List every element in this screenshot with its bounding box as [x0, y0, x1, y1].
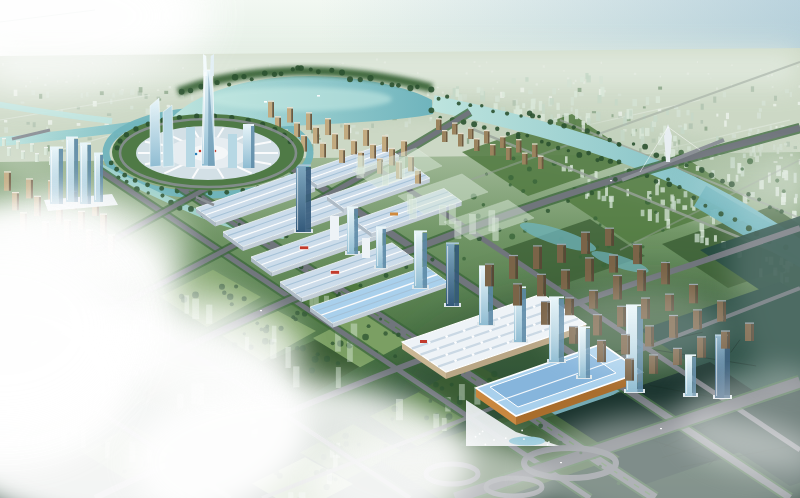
- residential-slab: [541, 302, 547, 325]
- ghost-building: [552, 88, 556, 95]
- tree-dot: [613, 177, 618, 182]
- residential-slab: [268, 102, 272, 118]
- residential-slab: [332, 134, 336, 149]
- distant-building: [340, 124, 342, 127]
- residential-slab-side: [343, 150, 345, 163]
- residential-roof: [401, 140, 407, 141]
- tree-dot: [215, 80, 220, 85]
- residential-roof: [565, 297, 574, 298]
- residential-roof: [30, 143, 34, 144]
- ghost-building: [556, 103, 559, 110]
- ghost-tower: [399, 157, 404, 177]
- residential-slab-side: [536, 145, 538, 157]
- distant-building: [405, 121, 409, 127]
- cbd-tower-roof: [94, 153, 103, 155]
- distant-building: [107, 113, 111, 116]
- tree-dot: [468, 103, 472, 107]
- residential-roof: [538, 156, 544, 157]
- tree-dot: [608, 159, 613, 164]
- distant-building: [757, 112, 761, 118]
- tree-dot: [691, 195, 696, 200]
- ghost-building: [477, 87, 481, 93]
- ghost-building: [502, 92, 505, 97]
- tree-dot: [548, 119, 554, 125]
- ghost-building: [519, 109, 522, 114]
- tree-dot: [339, 69, 345, 75]
- tree-dot: [291, 315, 295, 319]
- tower-side: [306, 167, 311, 232]
- far-speck: [417, 72, 419, 74]
- tree-dot: [599, 223, 602, 226]
- residential-roof: [533, 245, 542, 246]
- residential-slab: [537, 275, 543, 297]
- tree-dot: [527, 167, 532, 172]
- distant-building: [726, 113, 729, 119]
- residential-slab: [532, 144, 536, 157]
- ghost-building: [599, 76, 603, 84]
- distant-building: [520, 88, 524, 93]
- tree-dot: [393, 354, 397, 358]
- distant-building: [701, 120, 704, 124]
- residential-roof: [458, 133, 464, 134]
- residential-slab-side: [519, 285, 522, 306]
- distant-building: [4, 127, 8, 133]
- residential-slab: [4, 172, 9, 190]
- tower-roof: [376, 226, 386, 228]
- tree-dot: [509, 183, 512, 186]
- residential-slab-side: [291, 109, 293, 123]
- far-speck: [601, 62, 603, 64]
- ghost-building: [691, 113, 694, 121]
- tree-dot: [407, 85, 413, 91]
- residential-slab: [287, 108, 291, 122]
- tree-dot: [159, 186, 164, 191]
- tree-dot: [579, 255, 582, 258]
- ghost-tower: [382, 163, 388, 186]
- tree-dot: [556, 146, 560, 150]
- tree-dot: [316, 69, 321, 74]
- tree-dot: [262, 70, 268, 76]
- tree-dot: [654, 179, 659, 184]
- residential-slab-side: [456, 124, 458, 135]
- tower-sheen: [297, 168, 298, 230]
- plaza-color-dot: [195, 153, 198, 156]
- ghost-building: [652, 121, 656, 127]
- dome-skylight: [472, 335, 475, 338]
- residential-slab-side: [543, 275, 546, 296]
- plaza-dot: [479, 433, 481, 435]
- ghost-building: [632, 99, 637, 106]
- distant-building: [62, 140, 64, 142]
- residential-slab-side: [526, 154, 528, 164]
- tree-dot: [232, 74, 238, 80]
- dome-skylight: [533, 305, 536, 308]
- distant-building: [578, 88, 582, 92]
- tree-dot: [530, 113, 535, 118]
- residential-slab-side: [510, 148, 512, 160]
- tree-dot: [457, 101, 461, 105]
- tree-dot: [415, 85, 420, 90]
- residential-roof: [2, 138, 6, 139]
- far-speck: [710, 78, 711, 79]
- red-sign: [420, 340, 427, 343]
- distant-building: [775, 126, 777, 128]
- dome-skylight: [454, 341, 457, 344]
- ghost-building: [480, 88, 483, 96]
- tree-dot: [508, 175, 513, 180]
- tree-dot: [316, 352, 320, 356]
- tree-dot: [495, 127, 499, 131]
- tree-dot: [462, 257, 466, 261]
- tree-dot: [179, 89, 185, 95]
- residential-roof: [358, 151, 364, 152]
- tree-dot: [654, 211, 657, 214]
- tree-dot: [109, 161, 114, 166]
- dome-skylight: [498, 335, 501, 338]
- tree-dot: [379, 318, 382, 321]
- residential-slab: [633, 245, 639, 264]
- residential-slab-side: [639, 245, 642, 264]
- tree-dot: [509, 234, 515, 240]
- far-speck: [442, 92, 444, 94]
- ghost-building: [670, 195, 673, 202]
- tree-dot: [331, 341, 335, 345]
- ghost-building: [602, 196, 607, 201]
- ghost-building: [655, 185, 659, 195]
- tower-roof: [347, 206, 358, 208]
- far-speck: [575, 80, 577, 82]
- twin-tower: [163, 105, 174, 167]
- residential-roof: [339, 149, 345, 150]
- far-speck: [437, 87, 439, 88]
- cbd-tower-roof: [66, 137, 78, 139]
- dome-skylight: [480, 341, 483, 344]
- ghost-building: [660, 187, 664, 192]
- residential-roof: [275, 116, 281, 117]
- ghost-tower: [455, 221, 461, 238]
- boat: [264, 101, 267, 103]
- residential-roof: [44, 147, 48, 148]
- tree-dot: [546, 142, 551, 147]
- residential-slab-side: [310, 114, 312, 130]
- tree-dot: [445, 95, 449, 99]
- tower-side: [354, 209, 358, 254]
- distant-building: [4, 120, 7, 122]
- residential-slab-side: [374, 145, 376, 158]
- distant-building: [81, 93, 83, 98]
- residential-roof: [344, 123, 350, 124]
- rendering-canvas: [0, 0, 800, 498]
- residential-roof: [363, 129, 369, 130]
- distant-building: [86, 92, 89, 97]
- distant-building: [112, 93, 114, 98]
- distant-building: [427, 92, 430, 96]
- residential-roof: [474, 138, 480, 139]
- tree-dot: [519, 114, 522, 117]
- residential-slab-side: [520, 141, 522, 153]
- tree-dot: [607, 138, 612, 143]
- far-speck: [634, 73, 636, 75]
- distant-building: [618, 112, 622, 117]
- dome-skylight: [454, 359, 457, 362]
- distant-building: [26, 122, 29, 125]
- far-speck: [479, 65, 481, 67]
- residential-slab: [500, 137, 504, 148]
- distant-building: [579, 93, 583, 96]
- ghost-building: [626, 109, 629, 119]
- ghost-building: [516, 105, 520, 115]
- tree-dot: [491, 371, 497, 377]
- residential-slab: [533, 246, 539, 269]
- cloud: [550, 290, 730, 370]
- far-speck: [767, 76, 769, 78]
- tree-dot: [506, 132, 510, 136]
- residential-slab: [474, 139, 478, 151]
- residential-slab: [294, 123, 298, 137]
- tree-dot: [122, 173, 127, 178]
- tree-dot: [511, 156, 515, 160]
- ghost-building: [528, 90, 533, 95]
- residential-slab: [344, 124, 348, 139]
- residential-roof: [484, 130, 490, 131]
- dome-skylight: [533, 323, 536, 326]
- far-speck: [716, 87, 717, 89]
- tower-sheen: [447, 246, 448, 304]
- distant-building: [757, 129, 759, 133]
- tree-dot: [359, 283, 363, 287]
- twin-tower: [150, 98, 161, 167]
- distant-building: [618, 93, 621, 96]
- tree-dot: [505, 111, 509, 115]
- ghost-building: [567, 79, 571, 87]
- tree-dot: [546, 209, 550, 213]
- ghost-building: [673, 136, 677, 142]
- distant-building: [100, 91, 104, 95]
- residential-roof: [287, 107, 293, 108]
- tree-dot: [566, 199, 570, 203]
- distant-building: [774, 96, 777, 101]
- residential-roof: [468, 127, 474, 128]
- far-speck: [771, 74, 773, 76]
- tree-dot: [666, 181, 672, 187]
- ghost-building: [541, 114, 545, 121]
- residential-slab: [363, 130, 367, 146]
- residential-slab-side: [563, 245, 566, 263]
- tree-dot: [677, 185, 681, 189]
- tree-dot: [599, 156, 604, 161]
- tree-dot: [480, 104, 483, 107]
- distant-building: [751, 86, 754, 92]
- distant-building: [724, 120, 727, 126]
- tree-dot: [295, 65, 300, 70]
- residential-roof: [589, 290, 598, 291]
- residential-slab-side: [440, 120, 442, 130]
- tree-dot: [367, 75, 373, 81]
- tower-sheen: [348, 210, 349, 252]
- residential-roof: [436, 118, 442, 119]
- residential-roof: [506, 147, 512, 148]
- residential-slab: [468, 128, 472, 139]
- ghost-building: [531, 99, 535, 109]
- residential-roof: [16, 141, 20, 142]
- tower-roof: [446, 242, 459, 244]
- tree-dot: [358, 77, 363, 82]
- tree-dot: [440, 386, 444, 390]
- residential-roof: [313, 126, 319, 127]
- distant-building: [77, 123, 81, 126]
- tree-dot: [567, 149, 570, 152]
- island-tower: [228, 134, 237, 168]
- distant-building: [371, 123, 374, 127]
- tree-dot: [585, 128, 590, 133]
- tree-dot: [238, 223, 241, 226]
- residential-roof: [541, 301, 550, 302]
- residential-slab: [452, 123, 456, 134]
- residential-slab: [581, 233, 587, 254]
- residential-roof: [452, 122, 458, 123]
- residential-roof: [689, 284, 698, 285]
- island-tree: [117, 139, 122, 144]
- aerial-city-master-plan-rendering: [0, 0, 800, 498]
- tower-roof: [549, 296, 564, 298]
- dome-skylight: [445, 353, 448, 356]
- residential-slab-side: [611, 229, 614, 246]
- red-sign: [330, 271, 339, 275]
- residential-roof: [332, 133, 338, 134]
- dome-skylight: [437, 347, 440, 350]
- far-speck: [573, 82, 575, 84]
- residential-slab: [442, 131, 446, 142]
- car: [610, 180, 612, 181]
- distant-building: [191, 95, 194, 101]
- residential-roof: [605, 228, 614, 229]
- residential-roof: [442, 130, 448, 131]
- residential-slab: [637, 270, 643, 291]
- tree-dot: [482, 125, 487, 130]
- residential-slab: [557, 245, 563, 263]
- dome-skylight: [542, 329, 545, 332]
- ghost-building: [571, 97, 574, 105]
- distant-building: [723, 92, 726, 98]
- ghost-building: [656, 96, 660, 103]
- tree-dot: [596, 131, 600, 135]
- residential-slab-side: [462, 134, 464, 146]
- far-speck: [543, 65, 545, 67]
- residential-slab-side: [591, 259, 594, 282]
- distant-building: [737, 125, 740, 129]
- tree-dot: [433, 382, 439, 388]
- residential-slab: [561, 270, 567, 289]
- distant-building: [762, 101, 766, 106]
- far-speck: [687, 72, 689, 74]
- residential-slab: [605, 229, 611, 246]
- ghost-building: [632, 129, 636, 137]
- residential-slab-side: [667, 263, 670, 284]
- residential-slab: [320, 143, 324, 157]
- tree-dot: [540, 140, 544, 144]
- residential-roof: [500, 136, 506, 137]
- tower-side: [423, 233, 427, 288]
- ghost-building: [695, 234, 700, 243]
- ghost-building: [596, 112, 600, 121]
- distant-building: [689, 123, 693, 129]
- tree-dot: [525, 134, 529, 138]
- tree-dot: [602, 263, 607, 268]
- tree-dot: [617, 160, 622, 165]
- ghost-building: [700, 230, 704, 237]
- ghost-building: [621, 130, 625, 141]
- tower-front: [376, 228, 383, 268]
- tree-dot: [384, 273, 389, 278]
- tree-dot: [147, 191, 150, 194]
- white-slab: [362, 238, 370, 258]
- distant-building: [732, 134, 736, 138]
- residential-slab-side: [336, 135, 338, 150]
- dome-skylight: [507, 323, 510, 326]
- residential-slab-side: [615, 256, 618, 273]
- ghost-building: [677, 110, 681, 117]
- far-speck: [542, 80, 543, 81]
- residential-slab: [382, 136, 386, 152]
- residential-slab-side: [494, 145, 496, 155]
- far-speck: [157, 89, 159, 91]
- tree-dot: [250, 77, 254, 81]
- residential-roof: [522, 153, 528, 154]
- residential-slab-side: [329, 120, 331, 136]
- ghost-building: [615, 99, 618, 105]
- far-speck: [384, 61, 386, 63]
- residential-slab-side: [504, 138, 506, 148]
- island-tree: [115, 145, 120, 150]
- lake-highlight: [208, 87, 392, 111]
- far-speck: [797, 66, 799, 67]
- ghost-building: [641, 136, 645, 145]
- ghost-tower: [357, 156, 364, 178]
- residential-slab: [585, 258, 591, 281]
- distant-building: [773, 104, 776, 107]
- ghost-building: [512, 78, 516, 83]
- tree-dot: [533, 179, 538, 184]
- residential-slab-side: [355, 141, 357, 154]
- tree-dot: [561, 123, 566, 128]
- tree-dot: [188, 88, 193, 93]
- ghost-building: [539, 101, 542, 111]
- residential-roof: [532, 143, 538, 144]
- distant-building: [790, 92, 792, 97]
- far-speck: [697, 61, 698, 63]
- dome-skylight: [498, 317, 501, 320]
- tree-dot: [383, 331, 387, 335]
- tree-dot: [586, 151, 591, 156]
- residential-slab: [484, 131, 488, 144]
- ghost-building: [587, 118, 591, 125]
- residential-slab: [458, 134, 462, 147]
- residential-slab-side: [643, 270, 646, 291]
- residential-roof: [389, 148, 395, 149]
- residential-roof: [613, 275, 622, 276]
- ghost-building: [684, 124, 687, 130]
- dome-skylight: [445, 335, 448, 338]
- residential-slab: [609, 255, 615, 272]
- residential-roof: [509, 255, 518, 256]
- tree-dot: [227, 82, 231, 86]
- tree-dot: [537, 115, 541, 119]
- tree-dot: [654, 152, 660, 158]
- ghost-building: [586, 75, 590, 82]
- far-speck: [182, 67, 184, 69]
- far-speck: [269, 64, 271, 66]
- plaza-dot: [505, 437, 507, 439]
